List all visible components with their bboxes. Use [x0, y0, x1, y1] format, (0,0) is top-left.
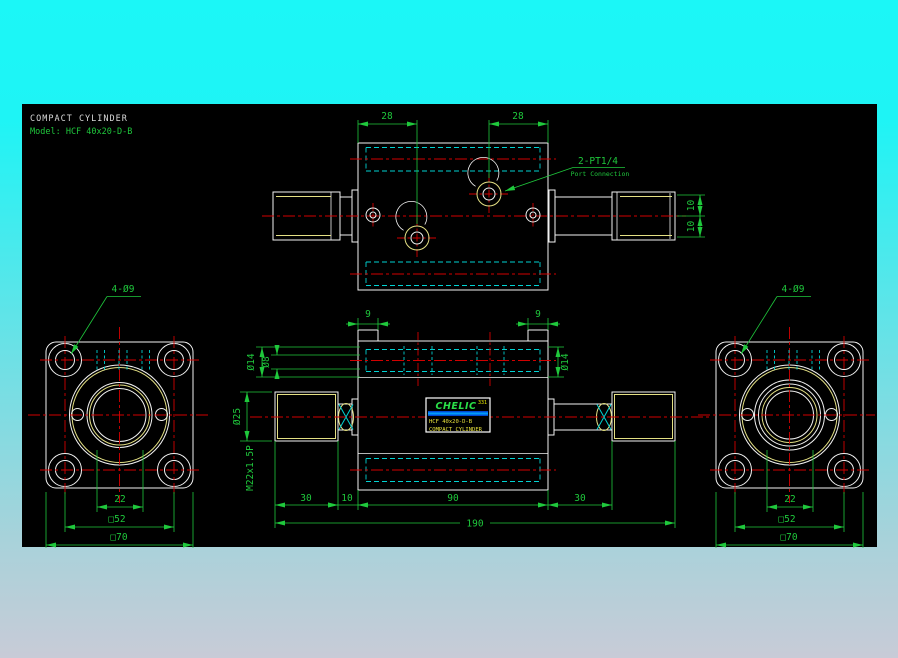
nameplate-model: HCF 40x20-D-B — [429, 419, 473, 425]
dim-flat-lower: 10 — [686, 221, 697, 233]
drawing-canvas — [22, 104, 877, 547]
dim-bore-left-inner: Ø8 — [261, 356, 272, 368]
dim-bore-left-outer: Ø14 — [246, 353, 257, 370]
port-callout-size: 2-PT1/4 — [578, 156, 618, 167]
dim-total-length: 190 — [466, 519, 483, 530]
nameplate-product: COMPACT CYLINDER — [429, 427, 483, 433]
nameplate: CHELIC 331 HCF 40x20-D-B COMPACT CYLINDE… — [426, 398, 490, 433]
dim-seg-rod-left: 30 — [300, 493, 312, 504]
cad-drawing: COMPACT CYLINDER Model: HCF 40x20-D-B — [0, 0, 898, 658]
dim-seg-neck-left: 10 — [341, 493, 353, 504]
right-flange-callout: 4-Ø9 — [782, 284, 805, 295]
right-dim-bolt-square: □52 — [778, 514, 795, 525]
drawing-title: COMPACT CYLINDER — [30, 114, 128, 124]
dim-seg-neck-right: 30 — [574, 493, 586, 504]
nameplate-brand: CHELIC — [436, 401, 477, 412]
dim-flat-upper: 10 — [686, 200, 697, 212]
dim-seg-body: 90 — [447, 493, 459, 504]
left-flange-callout: 4-Ø9 — [112, 284, 135, 295]
left-dim-bolt-square: □52 — [108, 514, 125, 525]
left-dim-rod-square: 22 — [114, 494, 125, 505]
nameplate-stripe — [428, 411, 488, 416]
right-dim-rod-square: 22 — [784, 494, 795, 505]
drawing-model: Model: HCF 40x20-D-B — [30, 127, 132, 137]
right-dim-flange-square: □70 — [780, 532, 797, 543]
nameplate-series: 331 — [478, 400, 487, 406]
left-dim-flange-square: □70 — [110, 532, 127, 543]
dim-port-right: 28 — [512, 111, 524, 122]
dim-boss-right: 9 — [535, 309, 541, 320]
dim-port-left: 28 — [381, 111, 393, 122]
thread-label: M22x1.5P — [245, 445, 256, 491]
dim-boss-left: 9 — [365, 309, 371, 320]
dim-rod-diameter: Ø25 — [232, 408, 243, 425]
port-callout-note: Port Connection — [571, 170, 630, 178]
dim-bore-right: Ø14 — [560, 353, 571, 370]
